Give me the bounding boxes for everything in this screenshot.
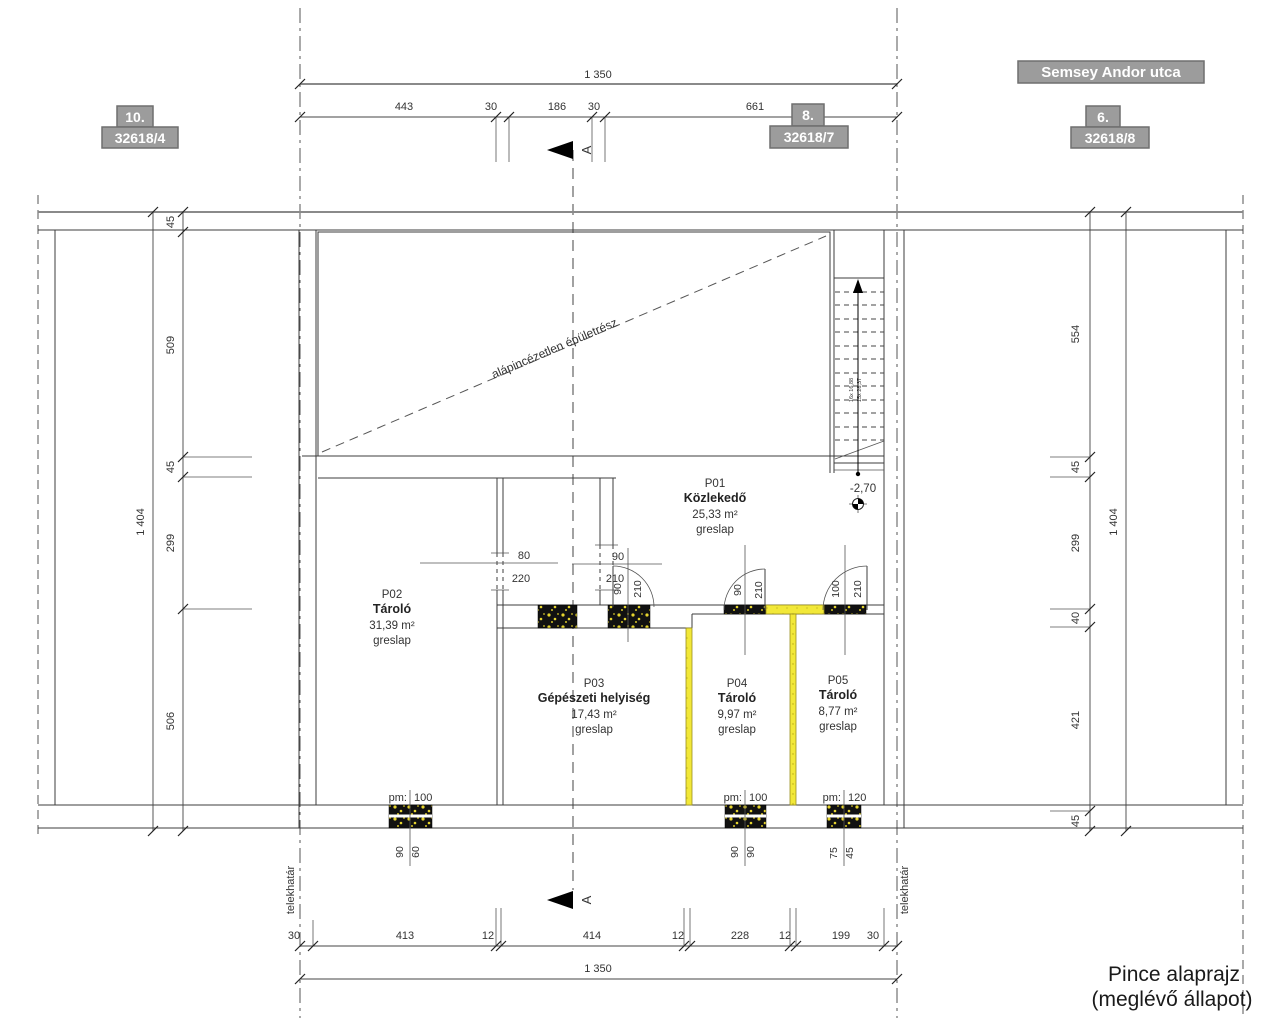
door-symbols: [613, 545, 867, 655]
plot-8-number: 8.: [802, 107, 814, 123]
room-p04-floor: greslap: [718, 724, 756, 736]
window2-d1: 90: [729, 846, 741, 858]
dim-door2-w: 90: [732, 584, 744, 596]
section-letter-top: A: [579, 145, 594, 154]
room-p01-id: P01: [705, 478, 725, 490]
dim-top-661: 661: [746, 101, 764, 113]
dim-left-total: 1 404: [135, 508, 147, 536]
plot-10-parcel: 32618/4: [115, 130, 166, 146]
room-p02-floor: greslap: [373, 635, 411, 647]
plot-labels: Semsey Andor utca 10. 32618/4 8. 32618/7…: [102, 61, 1204, 148]
room-p03-name: Gépészeti helyiség: [538, 691, 651, 705]
floor-plan-drawing: 16x 16,88 15x 28,37: [0, 0, 1278, 1024]
dim-bot-12a: 12: [482, 930, 494, 942]
stair-dimension-text-1: 16x 16,88: [849, 378, 855, 402]
room-p01-name: Közlekedő: [684, 491, 747, 505]
title-line2: (meglévő állapot): [1091, 988, 1252, 1011]
dim-left-45b: 45: [165, 461, 177, 473]
dim-right-40: 40: [1070, 612, 1082, 624]
no-basement-text: alápincézetlen épületrész: [489, 315, 619, 381]
dim-opening1-h: 220: [512, 573, 530, 585]
level-value: -2,70: [850, 483, 876, 495]
window2-d2: 90: [745, 846, 757, 858]
dim-door1-w: 90: [612, 583, 624, 595]
dim-right-421: 421: [1070, 711, 1082, 729]
room-p02-area: 31,39 m²: [369, 620, 415, 632]
dim-top-443: 443: [395, 101, 413, 113]
dim-left-509: 509: [165, 336, 177, 354]
room-p01-floor: greslap: [696, 524, 734, 536]
dim-top-30b: 30: [588, 101, 600, 113]
room-p02-name: Tároló: [373, 602, 412, 616]
plot-6-number: 6.: [1097, 109, 1109, 125]
dim-bot-12b: 12: [672, 930, 684, 942]
section-letter-bottom: A: [579, 895, 594, 904]
boundary-label-left: telekhatár: [285, 866, 297, 915]
dim-top-186: 186: [548, 101, 566, 113]
dim-door2-h: 210: [753, 581, 765, 599]
dim-bot-413: 413: [396, 930, 414, 942]
dim-right-total: 1 404: [1108, 508, 1120, 536]
dim-bottom-total: 1 350: [584, 963, 612, 975]
floor-plan-page: 16x 16,88 15x 28,37: [0, 0, 1278, 1024]
basement-windows: [389, 805, 861, 828]
dim-top-30a: 30: [485, 101, 497, 113]
dim-door3-h: 210: [852, 580, 864, 598]
drawing-title: Pince alaprajz (meglévő állapot): [1091, 963, 1252, 1011]
dim-door3-w: 100: [830, 580, 842, 598]
yellow-partition-walls: [686, 605, 824, 805]
section-line-a: [547, 141, 573, 909]
street-label: Semsey Andor utca: [1041, 64, 1181, 81]
room-p05-area: 8,77 m²: [819, 706, 858, 718]
room-p04-area: 9,97 m²: [718, 709, 757, 721]
dim-right-45a: 45: [1070, 461, 1082, 473]
room-p02-id: P02: [382, 589, 402, 601]
window1-pm-label: pm:: [389, 792, 407, 804]
window2-pm-value: 100: [749, 792, 767, 804]
window2-pm-label: pm:: [724, 792, 742, 804]
dim-right-45b: 45: [1070, 815, 1082, 827]
dim-bot-12c: 12: [779, 930, 791, 942]
room-p04-name: Tároló: [718, 691, 757, 705]
room-p05-name: Tároló: [819, 688, 858, 702]
stair-dimension-text-2: 15x 28,37: [857, 378, 863, 402]
window1-pm-value: 100: [414, 792, 432, 804]
plot-10-number: 10.: [125, 109, 144, 125]
dim-top-total: 1 350: [584, 69, 612, 81]
window3-pm-value: 120: [848, 792, 866, 804]
window3-d2: 45: [844, 847, 856, 859]
room-p04-id: P04: [727, 678, 748, 690]
room-p03-area: 17,43 m²: [571, 709, 617, 721]
property-boundary-lines: [38, 8, 1243, 1018]
plot-8-parcel: 32618/7: [784, 129, 835, 145]
boundary-label-right: telekhatár: [899, 866, 911, 915]
window3-pm-label: pm:: [823, 792, 841, 804]
dim-right-299: 299: [1070, 534, 1082, 552]
dim-opening2-w: 90: [612, 551, 624, 563]
dim-bot-228: 228: [731, 930, 749, 942]
dimension-texts: 1 350 443 30 186 30 661 30 413 12 414 12…: [135, 69, 1120, 975]
dim-left-45a: 45: [165, 216, 177, 228]
room-p03-floor: greslap: [575, 724, 613, 736]
dim-bot-199: 199: [832, 930, 850, 942]
room-p03-id: P03: [584, 678, 604, 690]
exterior-walls: [38, 212, 1243, 828]
dim-door1-h: 210: [632, 580, 644, 598]
window1-d1: 90: [394, 846, 406, 858]
window3-d1: 75: [828, 847, 840, 859]
title-line1: Pince alaprajz: [1108, 963, 1240, 986]
level-marker-icon: [849, 495, 867, 513]
dim-opening1-w: 80: [518, 550, 530, 562]
window1-d2: 60: [410, 846, 422, 858]
dim-bot-414: 414: [583, 930, 601, 942]
dim-bot-30b: 30: [867, 930, 879, 942]
plan-annotations: alápincézetlen épületrész -2,70 telekhat…: [285, 145, 911, 914]
dim-right-554: 554: [1070, 325, 1082, 343]
staircase: 16x 16,88 15x 28,37: [830, 230, 884, 476]
dimension-ticks: [148, 79, 1131, 984]
dim-left-299: 299: [165, 534, 177, 552]
dim-left-506: 506: [165, 712, 177, 730]
plot-6-parcel: 32618/8: [1085, 130, 1136, 146]
room-p05-floor: greslap: [819, 721, 857, 733]
dim-bot-30a: 30: [288, 930, 300, 942]
room-p05-id: P05: [828, 675, 848, 687]
room-p01-area: 25,33 m²: [692, 509, 738, 521]
